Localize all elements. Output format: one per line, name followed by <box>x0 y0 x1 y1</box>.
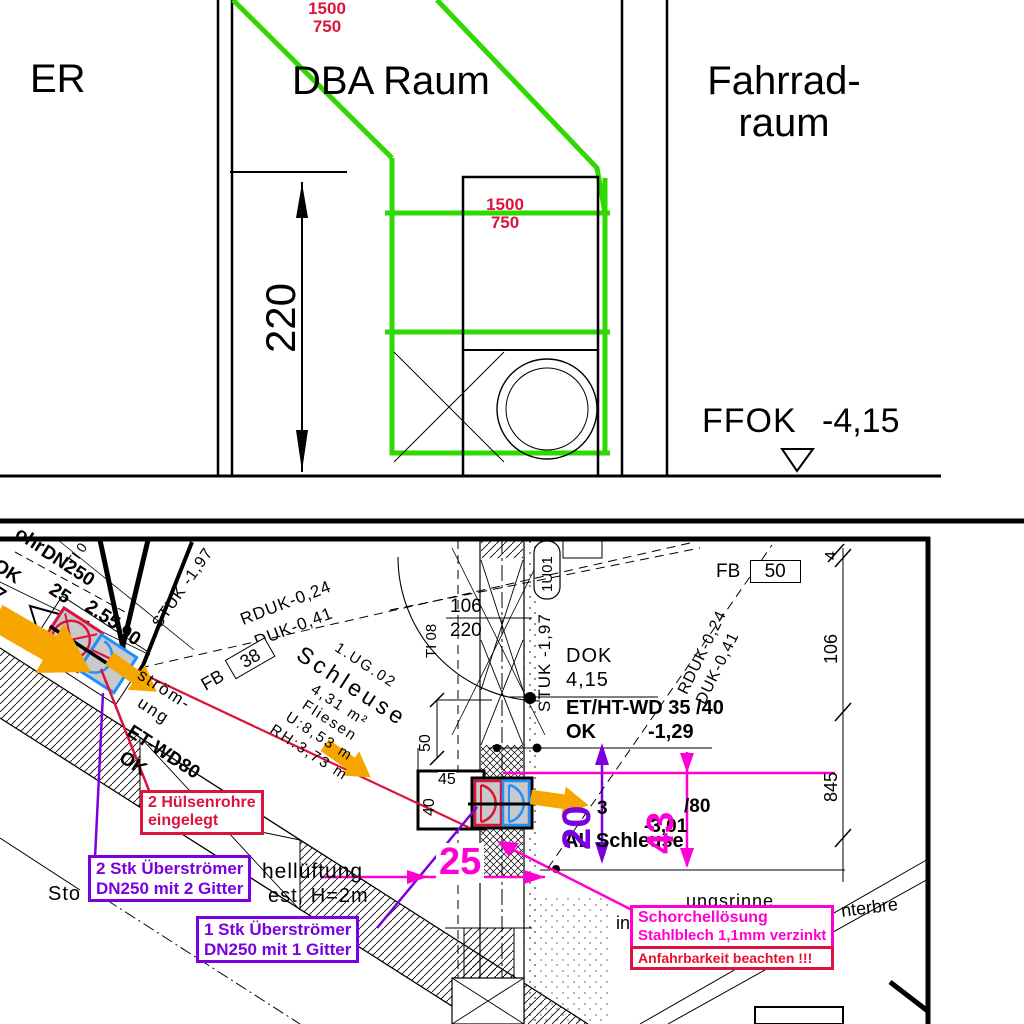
callout-ueberstroemer-2: 2 Stk Überströmer DN250 mit 2 Gitter <box>88 855 251 902</box>
annotation-wd2-size: /80 <box>684 797 710 817</box>
callout-huelsenrohre-line2: eingelegt <box>148 812 256 830</box>
callout-ueberstroemer-1: 1 Stk Überströmer DN250 mit 1 Gitter <box>196 916 359 963</box>
door-height: 220 <box>450 621 482 641</box>
frag-h2m: est, H=2m <box>268 886 369 907</box>
frag-in: in <box>616 914 630 933</box>
callout-schorchel: Schorchellösung Stahlblech 1,1mm verzink… <box>630 905 834 949</box>
door-width: 106 <box>450 597 482 617</box>
cad-drawing-page: ER DBA Raum Fahrrad- raum 1500 750 1500 … <box>0 0 1024 1024</box>
dimension-chain-right <box>828 544 851 882</box>
wall-duct-symbol <box>468 778 536 828</box>
duct-size-upper: 1500 750 <box>292 0 362 36</box>
level-label-value: -4,15 <box>822 404 900 440</box>
dim-106: 106 <box>822 634 841 664</box>
dim-40: 40 <box>422 798 439 816</box>
door-tag-ti08: TI 08 <box>424 624 440 658</box>
duct-size-upper-w: 1500 <box>292 0 362 18</box>
duct-size-lower-h: 750 <box>468 214 542 232</box>
tag-fb50: FB 50 <box>716 562 801 582</box>
tag-fb50-prefix: FB <box>716 561 740 582</box>
tag-1u01: 1U01 <box>540 556 556 592</box>
frag-sto: Sto <box>48 884 81 905</box>
level-dok-value: 4,15 <box>566 670 609 691</box>
level-label-name: FFOK <box>702 404 797 440</box>
level-dok: DOK <box>566 646 612 667</box>
annotation-wd1-ok: OK <box>566 722 596 743</box>
dim-20-purple: 20 <box>556 806 598 851</box>
dim-45: 45 <box>438 772 456 789</box>
fahrradraum-line1: Fahrrad- <box>698 60 870 102</box>
room-label-dba-raum: DBA Raum <box>292 60 490 102</box>
level-marker-icon <box>782 449 813 471</box>
callout-huelsenrohre-line1: 2 Hülsenrohre <box>148 794 256 812</box>
annotation-wd1-value: -1,29 <box>648 722 694 743</box>
dim-4: 4 <box>824 551 841 560</box>
callout-anfahrbarkeit: Anfahrbarkeit beachten !!! <box>630 946 834 970</box>
fahrradraum-line2: raum <box>698 102 870 144</box>
duct-size-lower-w: 1500 <box>468 196 542 214</box>
callout-huelsenrohre: 2 Hülsenrohre eingelegt <box>140 790 264 835</box>
height-dim-label: 220 <box>259 263 303 373</box>
dim-43-magenta: 43 <box>642 812 682 854</box>
callout-ueber1-line2: DN250 mit 1 Gitter <box>204 940 351 960</box>
duct-size-upper-h: 750 <box>292 18 362 36</box>
room-label-fahrradraum: Fahrrad- raum <box>698 60 870 144</box>
dim-25-magenta: 25 <box>436 843 484 883</box>
room-label-er: ER <box>30 58 86 100</box>
callout-schorchel-line2: Stahlblech 1,1mm verzinkt <box>638 927 826 944</box>
tag-fb50-value: 50 <box>750 560 801 583</box>
callout-ueber2-line1: 2 Stk Überströmer <box>96 859 243 879</box>
dim-50: 50 <box>418 734 435 752</box>
duct-size-lower: 1500 750 <box>468 196 542 232</box>
level-stuk-2: STUK -1,97 <box>536 613 554 712</box>
dim-845: 845 <box>822 772 841 802</box>
elevation-linework <box>0 0 1024 521</box>
callout-ueber2-line2: DN250 mit 2 Gitter <box>96 879 243 899</box>
callout-schorchel-line1: Schorchellösung <box>638 909 826 927</box>
frag-lueftung: hellüftung <box>262 861 363 883</box>
callout-schorchel-group: Schorchellösung Stahlblech 1,1mm verzink… <box>630 905 834 970</box>
callout-ueber1-line1: 1 Stk Überströmer <box>204 920 351 940</box>
